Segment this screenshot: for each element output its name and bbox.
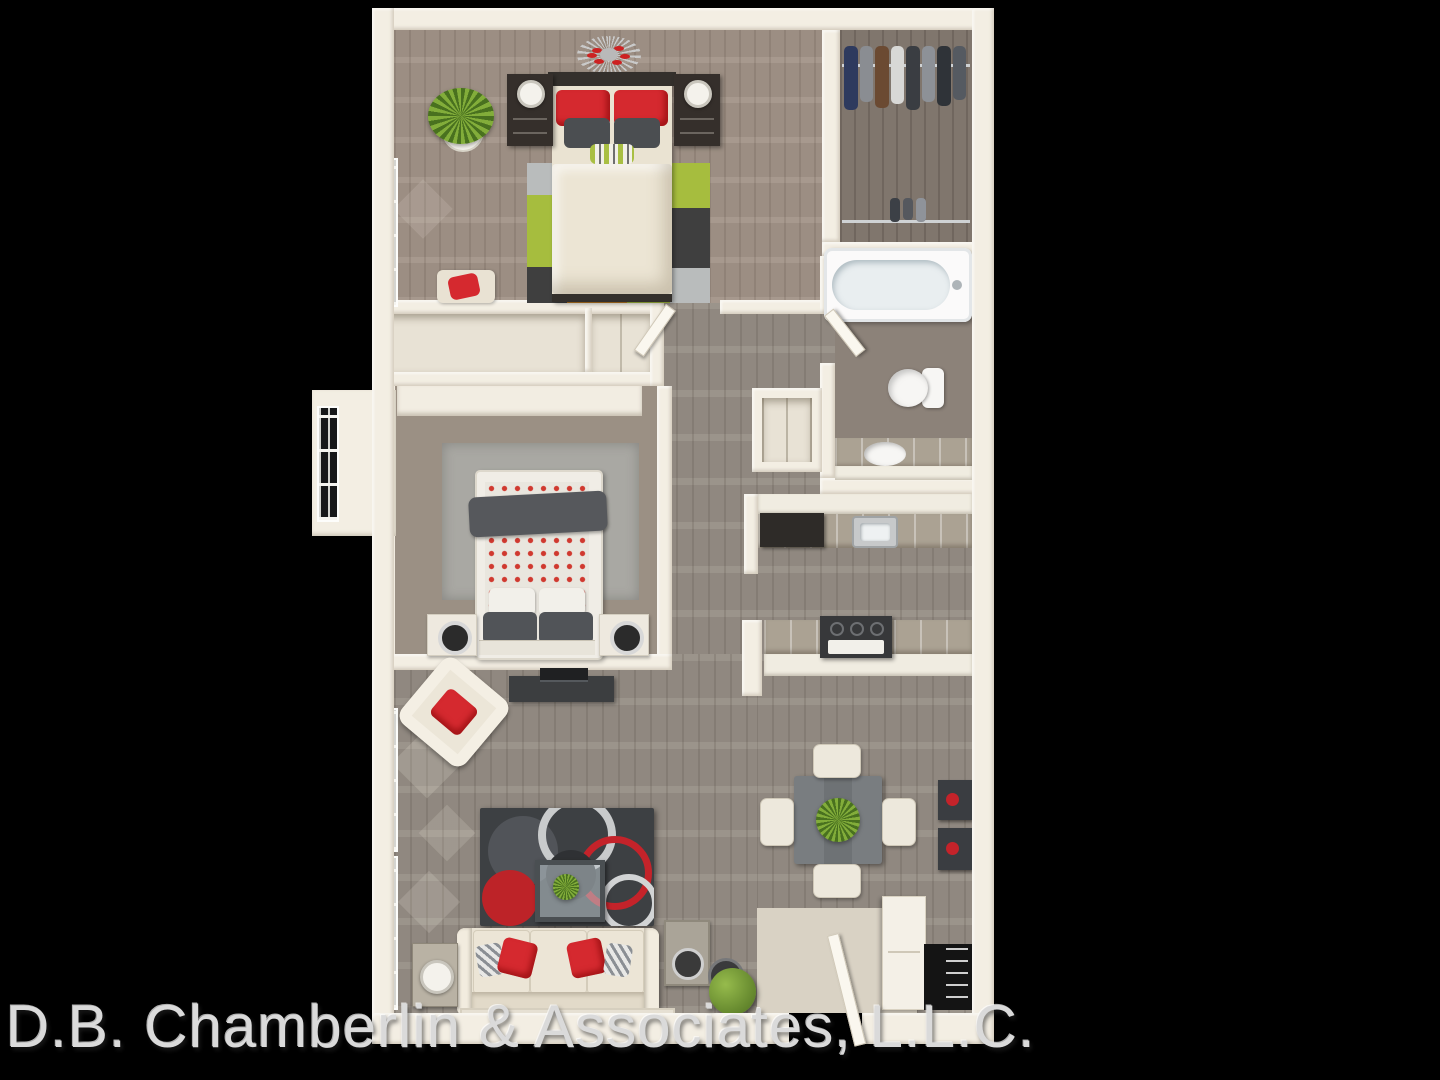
apartment-floor-plan (372, 8, 994, 1044)
drawer-line (513, 118, 547, 120)
garment (844, 46, 858, 110)
garment (953, 46, 966, 100)
wall (372, 372, 657, 386)
watermark-text: D.B. Chamberlin & Associates, L.L.C. (6, 992, 1426, 1061)
rug-patch (670, 268, 710, 303)
nightstand-white (599, 614, 649, 656)
duvet (552, 164, 672, 294)
dining-chair (760, 798, 794, 846)
refrigerator (760, 513, 824, 547)
drawer-line (513, 132, 547, 134)
garment (891, 46, 904, 104)
floor-lamp (420, 960, 454, 994)
dark-throw-blanket (468, 490, 608, 537)
master-bed (552, 72, 672, 302)
wall (585, 308, 592, 372)
garment (903, 198, 913, 220)
table-lamp (684, 80, 712, 108)
vanity-cabinet-front (835, 466, 972, 480)
speaker-driver (672, 948, 704, 980)
speaker (610, 621, 644, 655)
speaker (438, 621, 472, 655)
garment (916, 198, 926, 222)
bathtub (824, 248, 972, 322)
footboard-bench (479, 640, 595, 655)
oven-door (828, 640, 884, 654)
range-stove (820, 616, 892, 658)
red-pillow (566, 937, 608, 979)
hall-closet-left (382, 314, 585, 372)
garment (860, 46, 873, 102)
speaker-cabinet (664, 920, 710, 986)
wall (820, 478, 994, 494)
second-bed (475, 470, 603, 660)
rug-circle-red (482, 870, 538, 926)
drawer-line (680, 118, 714, 120)
garment (890, 198, 900, 222)
table-plant (553, 874, 579, 900)
dining-table (794, 776, 882, 864)
garment (922, 46, 935, 102)
burner (830, 622, 844, 636)
closet-sliding-doors (397, 386, 642, 416)
rug-ring-silver (600, 874, 654, 926)
hanging-clothes (890, 198, 940, 222)
television (540, 668, 588, 682)
red-pillow (447, 272, 481, 301)
outer-wall-right (972, 8, 994, 1044)
drawer-line (680, 132, 714, 134)
nightstand (507, 74, 553, 146)
garment (937, 46, 951, 106)
burner (870, 622, 884, 636)
bedroom-armchair (437, 270, 495, 303)
table-lamp (517, 80, 545, 108)
accent-pillow (590, 144, 634, 164)
wall (744, 494, 758, 574)
striped-pillow (603, 942, 634, 978)
nightstand (674, 74, 720, 146)
red-pillow (429, 687, 480, 737)
rug-patch (670, 208, 710, 268)
outer-wall-left (372, 8, 394, 1044)
toilet-bowl (888, 369, 928, 407)
coffee-table (535, 860, 605, 922)
outer-wall-top (372, 8, 994, 30)
art-red-accent (946, 793, 959, 806)
sink-basin (860, 523, 890, 541)
dining-chair (813, 864, 861, 898)
cabinet-line (888, 951, 920, 953)
dining-chair (882, 798, 916, 846)
ceiling-light-center (600, 48, 618, 61)
kitchen-sink (852, 516, 898, 548)
bay-window-glass (317, 406, 339, 522)
wall (720, 300, 827, 314)
garment (875, 46, 889, 108)
garment (906, 46, 920, 110)
kitchen-upper-cabinet-front (758, 494, 972, 514)
wall (742, 620, 762, 696)
hall-linen-closet-interior (762, 398, 812, 462)
hanging-clothes (844, 46, 970, 114)
tub-basin (832, 260, 950, 310)
dining-chair (813, 744, 861, 778)
floor-plan-scene: D.B. Chamberlin & Associates, L.L.C. (0, 0, 1440, 1080)
nightstand-white (427, 614, 477, 656)
wall (657, 386, 672, 670)
wall-art (938, 828, 972, 870)
wall-art (938, 780, 972, 820)
vanity-sink (864, 442, 906, 466)
wall (820, 363, 835, 478)
potted-palm (428, 88, 494, 144)
rug-patch (670, 163, 710, 208)
tub-faucet (952, 280, 962, 290)
art-red-accent (946, 842, 959, 855)
headboard (548, 72, 676, 86)
toilet (888, 366, 944, 410)
burner (850, 622, 864, 636)
centerpiece-plant (816, 798, 860, 842)
footboard (552, 294, 672, 302)
wall (822, 30, 840, 242)
